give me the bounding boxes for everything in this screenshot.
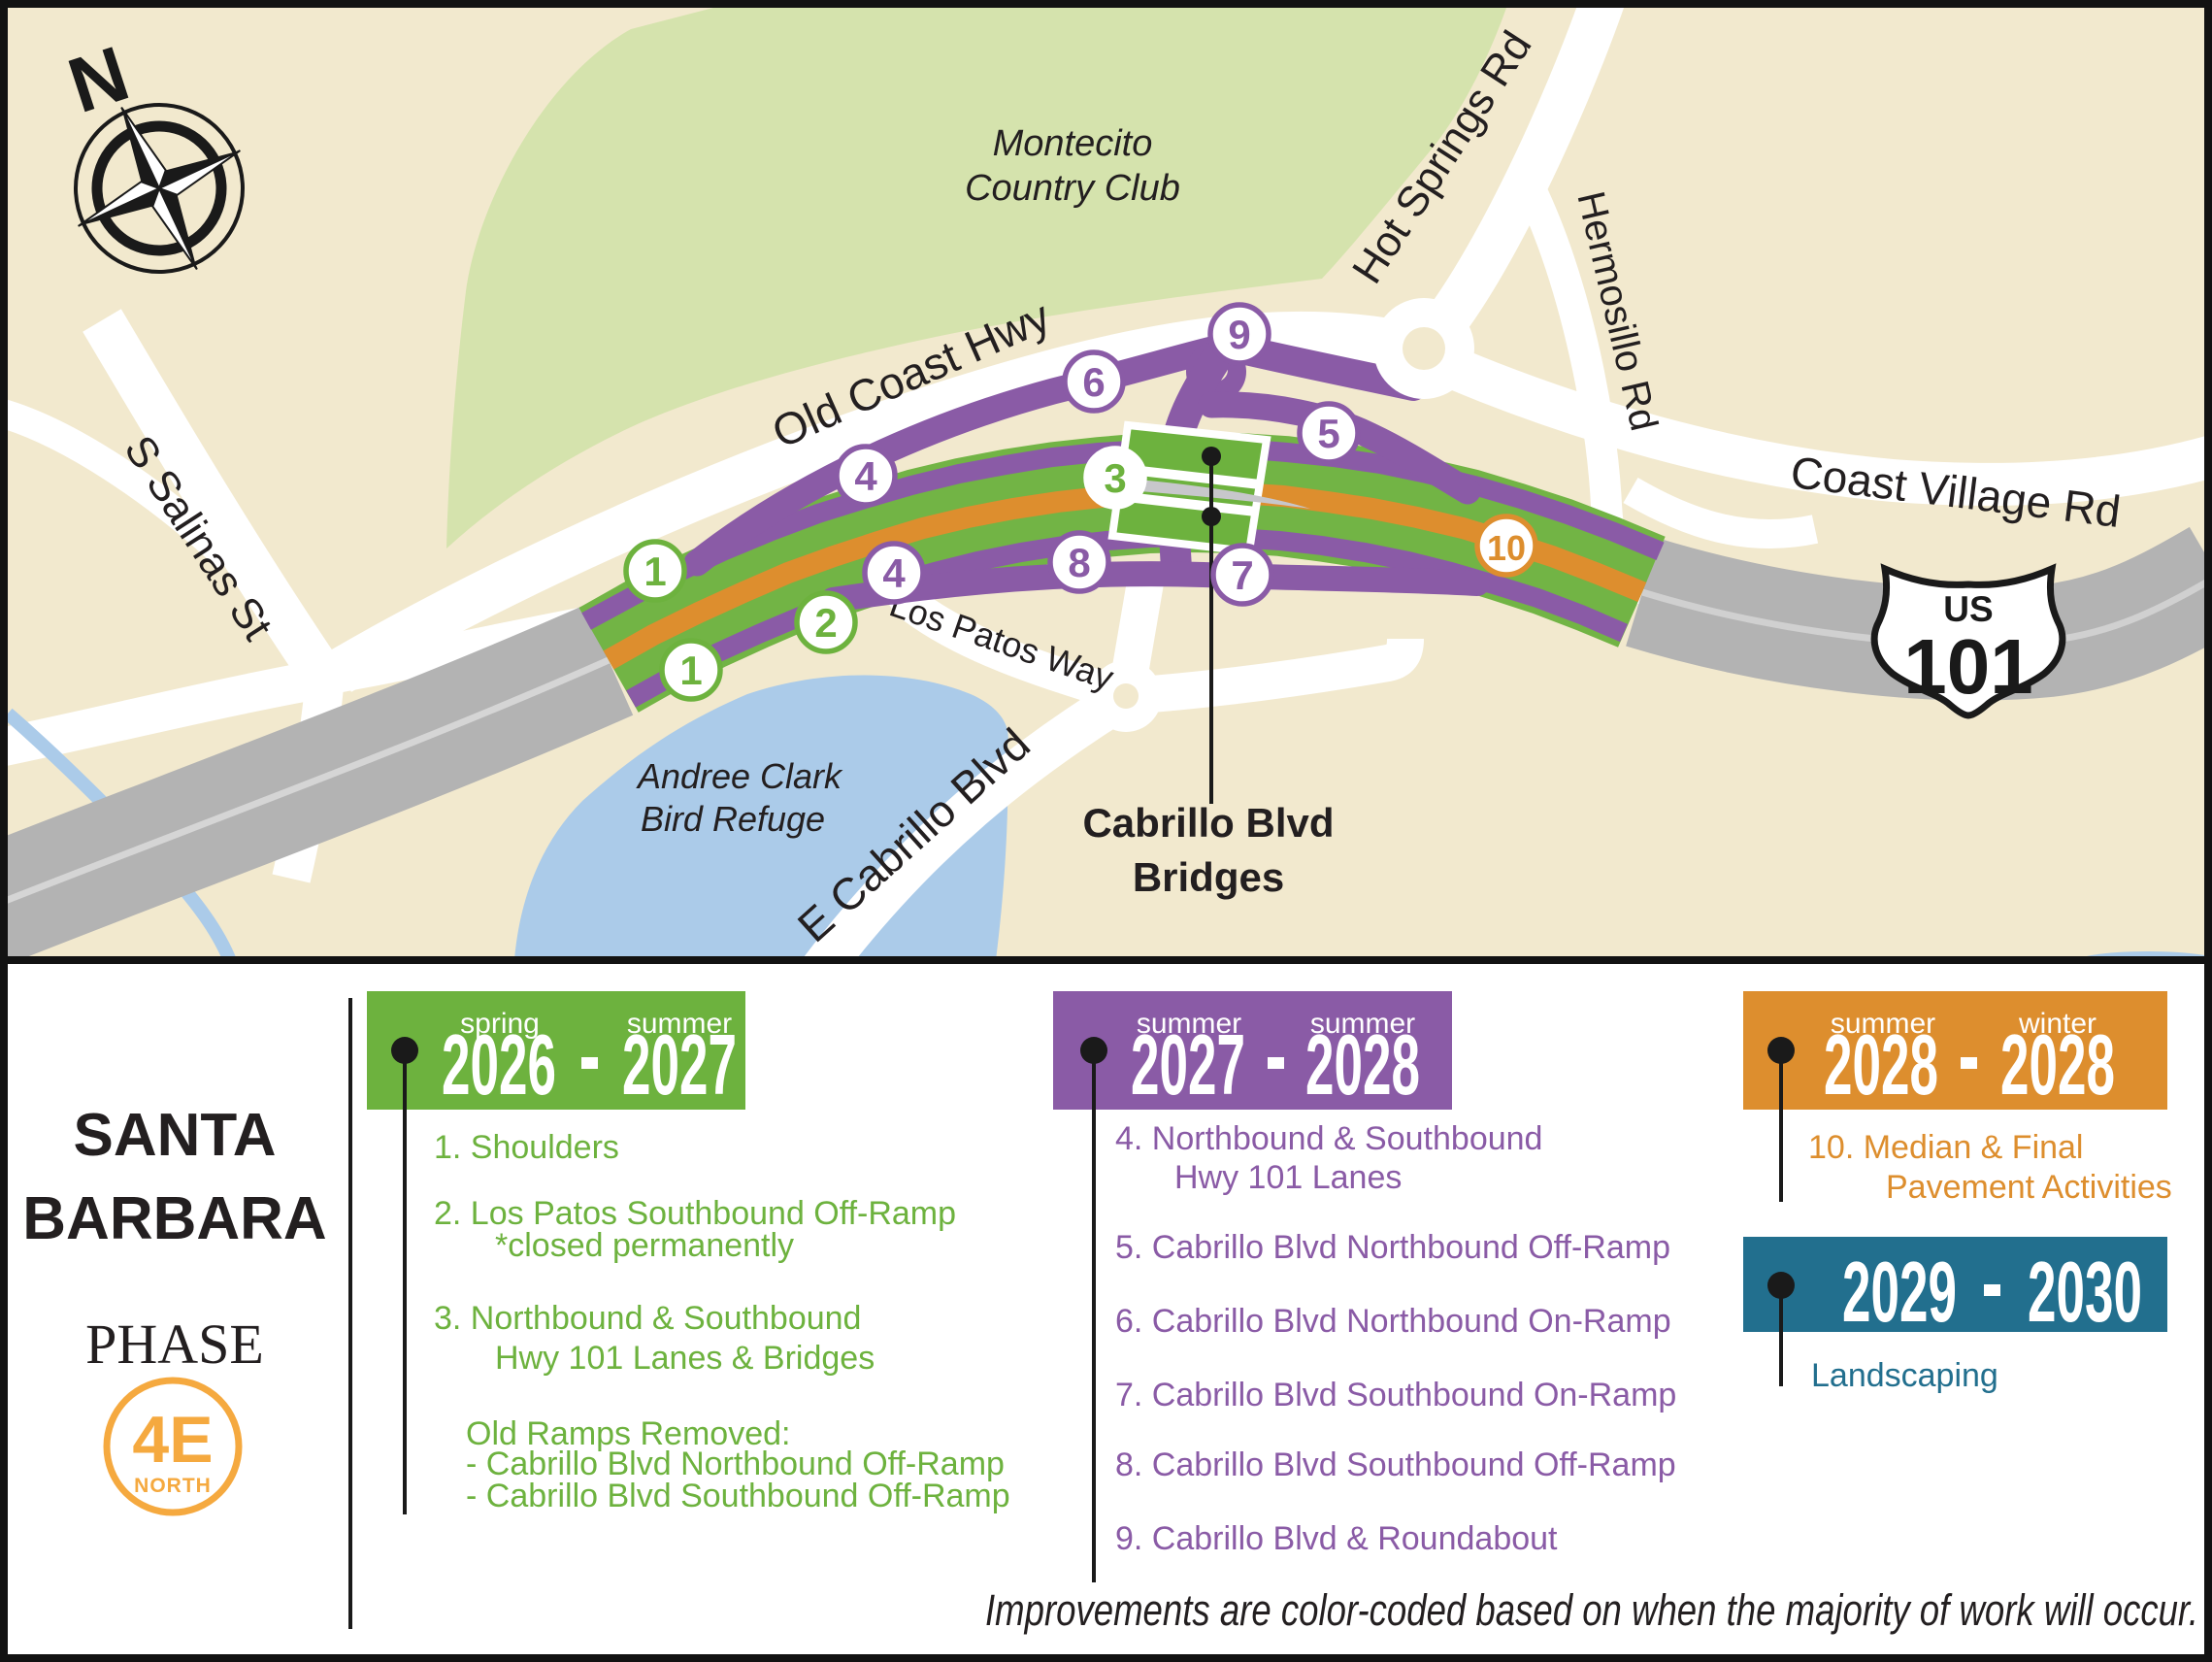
svg-text:5: 5 xyxy=(1317,411,1339,456)
svg-text:2028: 2028 xyxy=(2000,1016,2115,1113)
svg-text:3. Northbound & Southbound: 3. Northbound & Southbound xyxy=(434,1300,861,1337)
svg-text:Landscaping: Landscaping xyxy=(1811,1357,1998,1394)
svg-text:9. Cabrillo Blvd & Roundabout: 9. Cabrillo Blvd & Roundabout xyxy=(1115,1520,1558,1557)
svg-text:Cabrillo Blvd: Cabrillo Blvd xyxy=(1082,800,1334,846)
svg-text:Hwy 101 Lanes & Bridges: Hwy 101 Lanes & Bridges xyxy=(495,1340,875,1377)
svg-text:1. Shoulders: 1. Shoulders xyxy=(434,1129,619,1166)
svg-text:BARBARA: BARBARA xyxy=(22,1185,326,1252)
svg-text:*closed permanently: *closed permanently xyxy=(495,1227,794,1264)
svg-text:3: 3 xyxy=(1104,455,1126,501)
svg-text:2027: 2027 xyxy=(622,1016,737,1113)
svg-text:Pavement Activities: Pavement Activities xyxy=(1886,1169,2172,1206)
svg-text:8: 8 xyxy=(1068,540,1090,585)
svg-text:4: 4 xyxy=(854,453,877,499)
svg-text:Bridges: Bridges xyxy=(1133,854,1284,900)
svg-text:NORTH: NORTH xyxy=(134,1475,212,1497)
svg-text:5. Cabrillo Blvd Northbound Of: 5. Cabrillo Blvd Northbound Off-Ramp xyxy=(1115,1229,1670,1266)
svg-text:8. Cabrillo Blvd Southbound Of: 8. Cabrillo Blvd Southbound Off-Ramp xyxy=(1115,1446,1676,1483)
svg-text:2: 2 xyxy=(814,600,837,646)
svg-text:7: 7 xyxy=(1231,552,1253,598)
svg-text:1: 1 xyxy=(679,648,702,693)
svg-text:Country Club: Country Club xyxy=(965,168,1180,209)
svg-text:1: 1 xyxy=(644,548,666,594)
svg-text:2026: 2026 xyxy=(442,1016,556,1113)
svg-text:Hwy 101 Lanes: Hwy 101 Lanes xyxy=(1174,1159,1402,1196)
svg-text:4. Northbound & Southbound: 4. Northbound & Southbound xyxy=(1115,1120,1542,1157)
svg-text:2027: 2027 xyxy=(1131,1016,1245,1113)
svg-text:10: 10 xyxy=(1487,528,1526,568)
svg-text:101: 101 xyxy=(1903,623,2032,710)
svg-text:2028: 2028 xyxy=(1824,1016,1938,1113)
svg-text:Improvements are color-coded b: Improvements are color-coded based on wh… xyxy=(985,1585,2198,1635)
svg-text:4E: 4E xyxy=(132,1403,213,1477)
svg-text:SANTA: SANTA xyxy=(74,1102,277,1169)
svg-text:7. Cabrillo Blvd Southbound On: 7. Cabrillo Blvd Southbound On-Ramp xyxy=(1115,1377,1676,1413)
svg-text:6: 6 xyxy=(1082,359,1105,405)
svg-text:- Cabrillo Blvd Southbound Off: - Cabrillo Blvd Southbound Off-Ramp xyxy=(466,1478,1010,1514)
svg-text:6. Cabrillo Blvd Northbound On: 6. Cabrillo Blvd Northbound On-Ramp xyxy=(1115,1303,1671,1340)
svg-text:2030: 2030 xyxy=(2028,1244,2142,1340)
svg-text:9: 9 xyxy=(1228,312,1250,357)
svg-text:PHASE: PHASE xyxy=(85,1313,264,1376)
svg-text:2028: 2028 xyxy=(1305,1016,1420,1113)
svg-text:Bird Refuge: Bird Refuge xyxy=(641,799,825,839)
svg-text:10. Median & Final: 10. Median & Final xyxy=(1808,1129,2084,1166)
svg-text:4: 4 xyxy=(882,550,906,596)
svg-text:Montecito: Montecito xyxy=(993,123,1153,164)
svg-text:Andree Clark: Andree Clark xyxy=(636,756,843,796)
svg-text:2029: 2029 xyxy=(1842,1244,1957,1340)
